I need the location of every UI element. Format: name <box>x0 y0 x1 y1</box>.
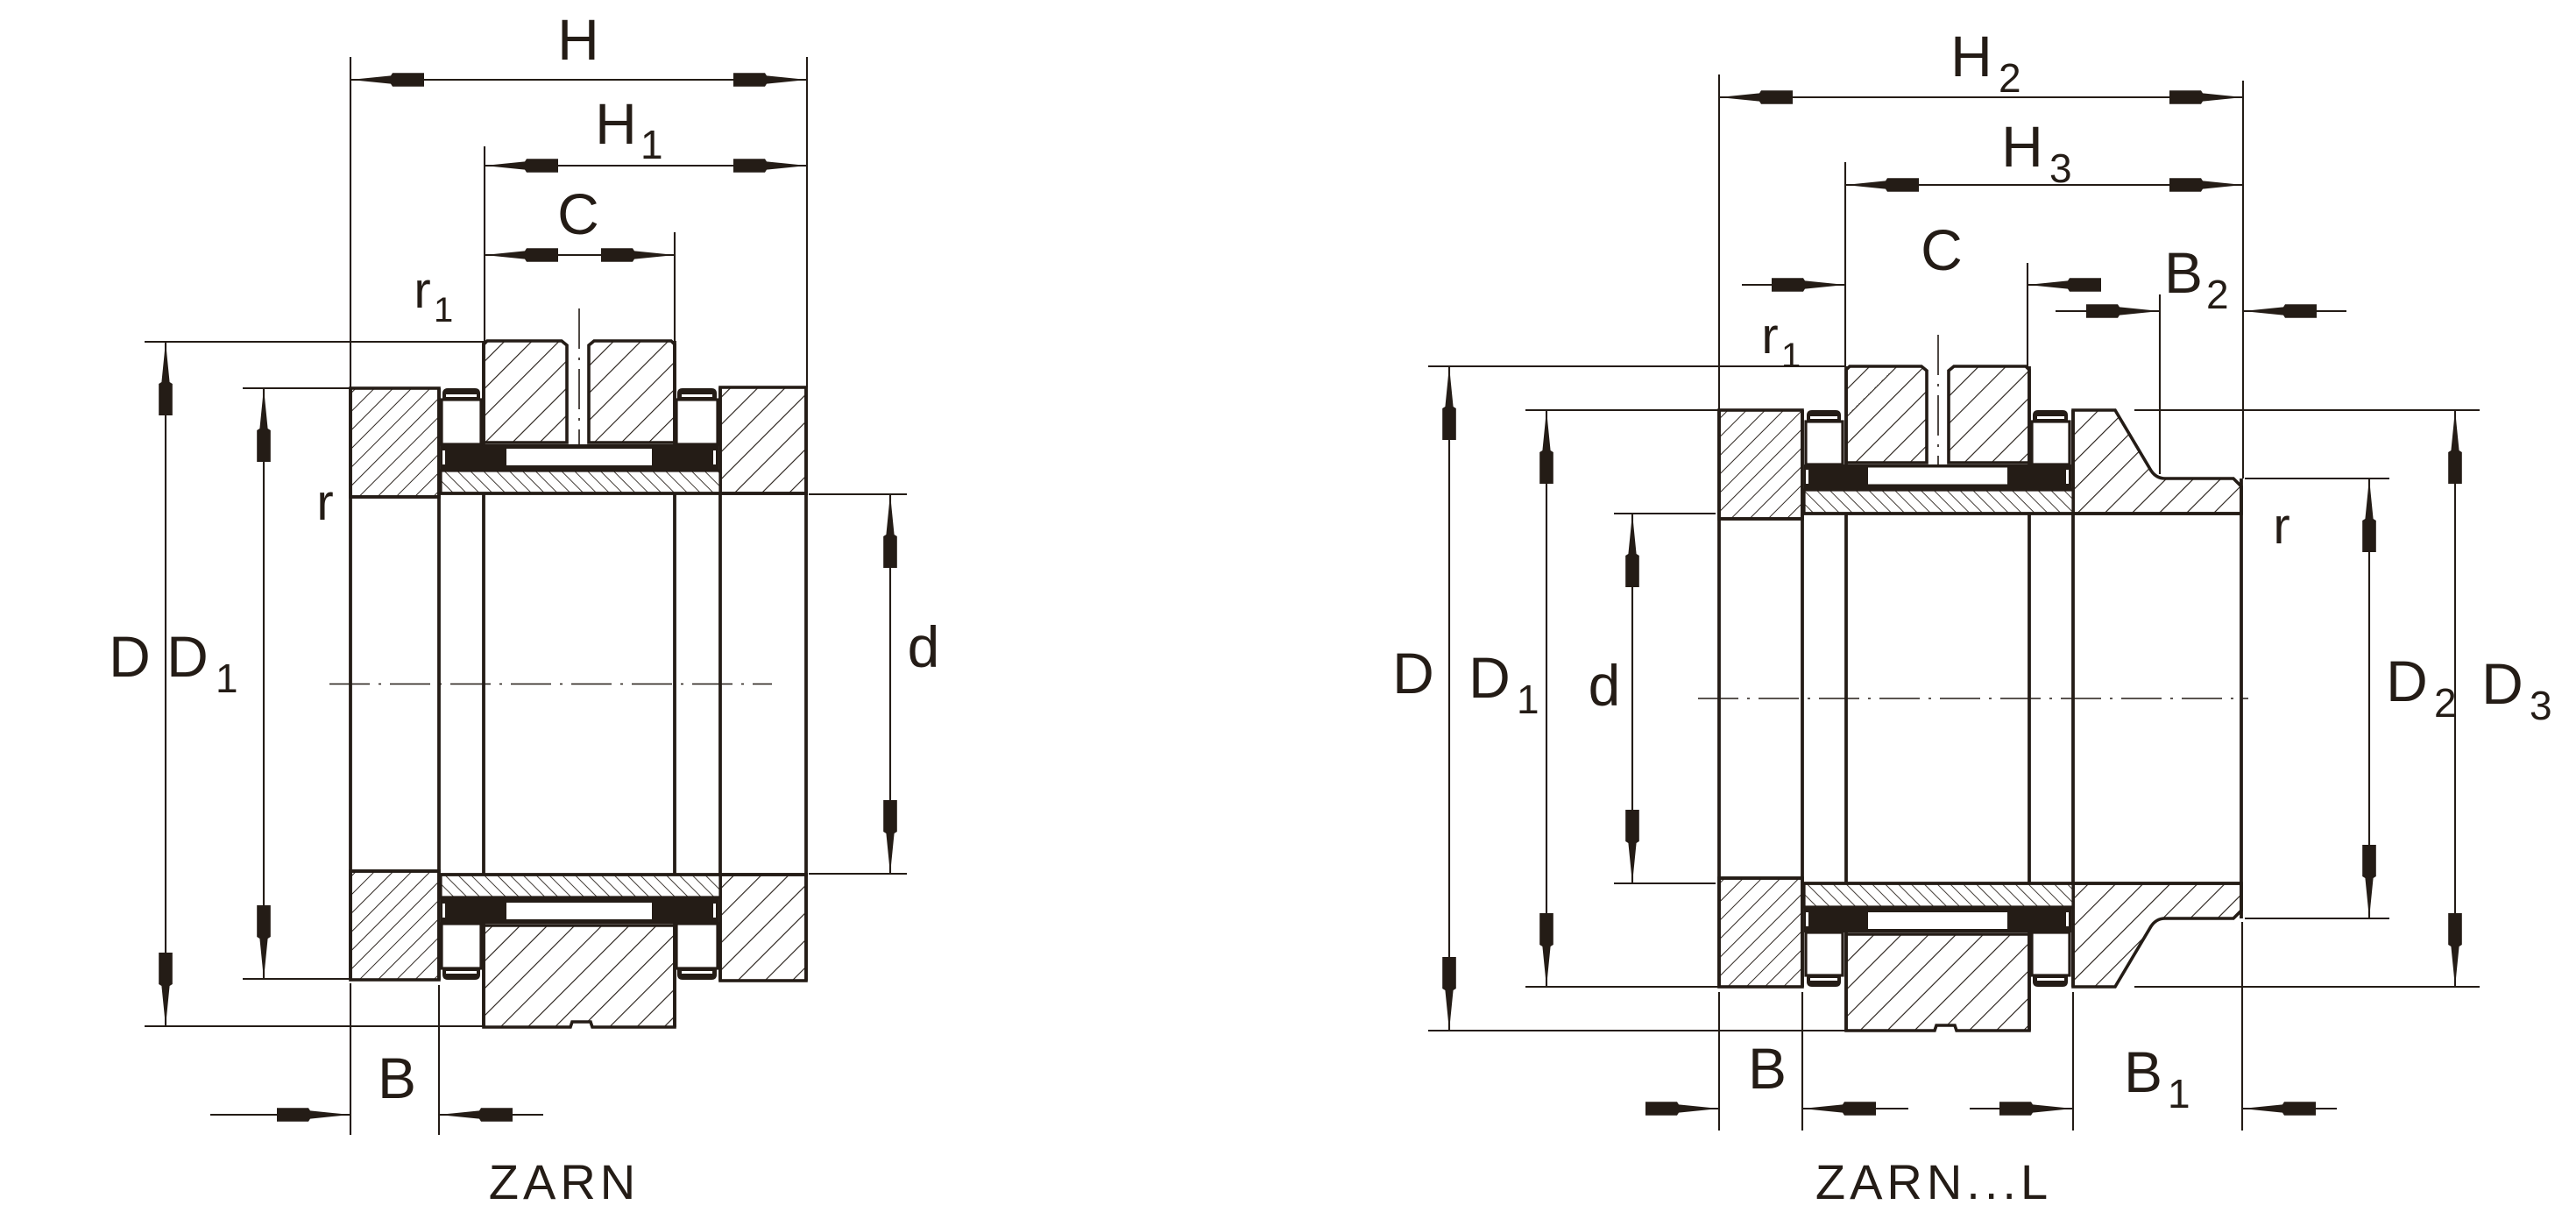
svg-text:C: C <box>1921 217 1963 282</box>
svg-text:3: 3 <box>2049 145 2072 191</box>
svg-text:ZARN: ZARN <box>489 1154 640 1205</box>
svg-text:D: D <box>166 624 209 689</box>
svg-text:D: D <box>2386 649 2428 713</box>
svg-text:1: 1 <box>1517 677 1539 722</box>
svg-text:C: C <box>557 181 599 246</box>
svg-text:H: H <box>1950 24 1992 89</box>
svg-text:1: 1 <box>2168 1071 2190 1116</box>
svg-text:B: B <box>2124 1039 2162 1104</box>
svg-text:D: D <box>2481 651 2523 716</box>
svg-text:2: 2 <box>2434 680 2457 726</box>
svg-text:D: D <box>1468 645 1511 710</box>
svg-text:2: 2 <box>2206 272 2229 317</box>
svg-text:1: 1 <box>216 656 238 701</box>
svg-text:r: r <box>2273 498 2289 555</box>
svg-text:r: r <box>1761 308 1778 365</box>
svg-text:r: r <box>316 474 333 531</box>
svg-text:1: 1 <box>1781 337 1801 375</box>
svg-text:1: 1 <box>640 122 663 167</box>
svg-text:H: H <box>595 91 637 156</box>
svg-text:H: H <box>557 7 599 72</box>
svg-text:1: 1 <box>434 291 453 330</box>
svg-text:B: B <box>2164 240 2203 305</box>
svg-text:r: r <box>414 262 430 319</box>
svg-text:2: 2 <box>1999 55 2021 101</box>
svg-text:H: H <box>2001 114 2043 179</box>
svg-text:d: d <box>1589 653 1621 718</box>
svg-text:3: 3 <box>2530 683 2552 728</box>
svg-text:B: B <box>378 1046 416 1110</box>
svg-text:ZARN...L: ZARN...L <box>1815 1154 2052 1205</box>
svg-text:B: B <box>1748 1036 1787 1101</box>
svg-text:d: d <box>908 614 940 679</box>
svg-text:D: D <box>1392 641 1434 705</box>
svg-text:D: D <box>109 624 151 689</box>
